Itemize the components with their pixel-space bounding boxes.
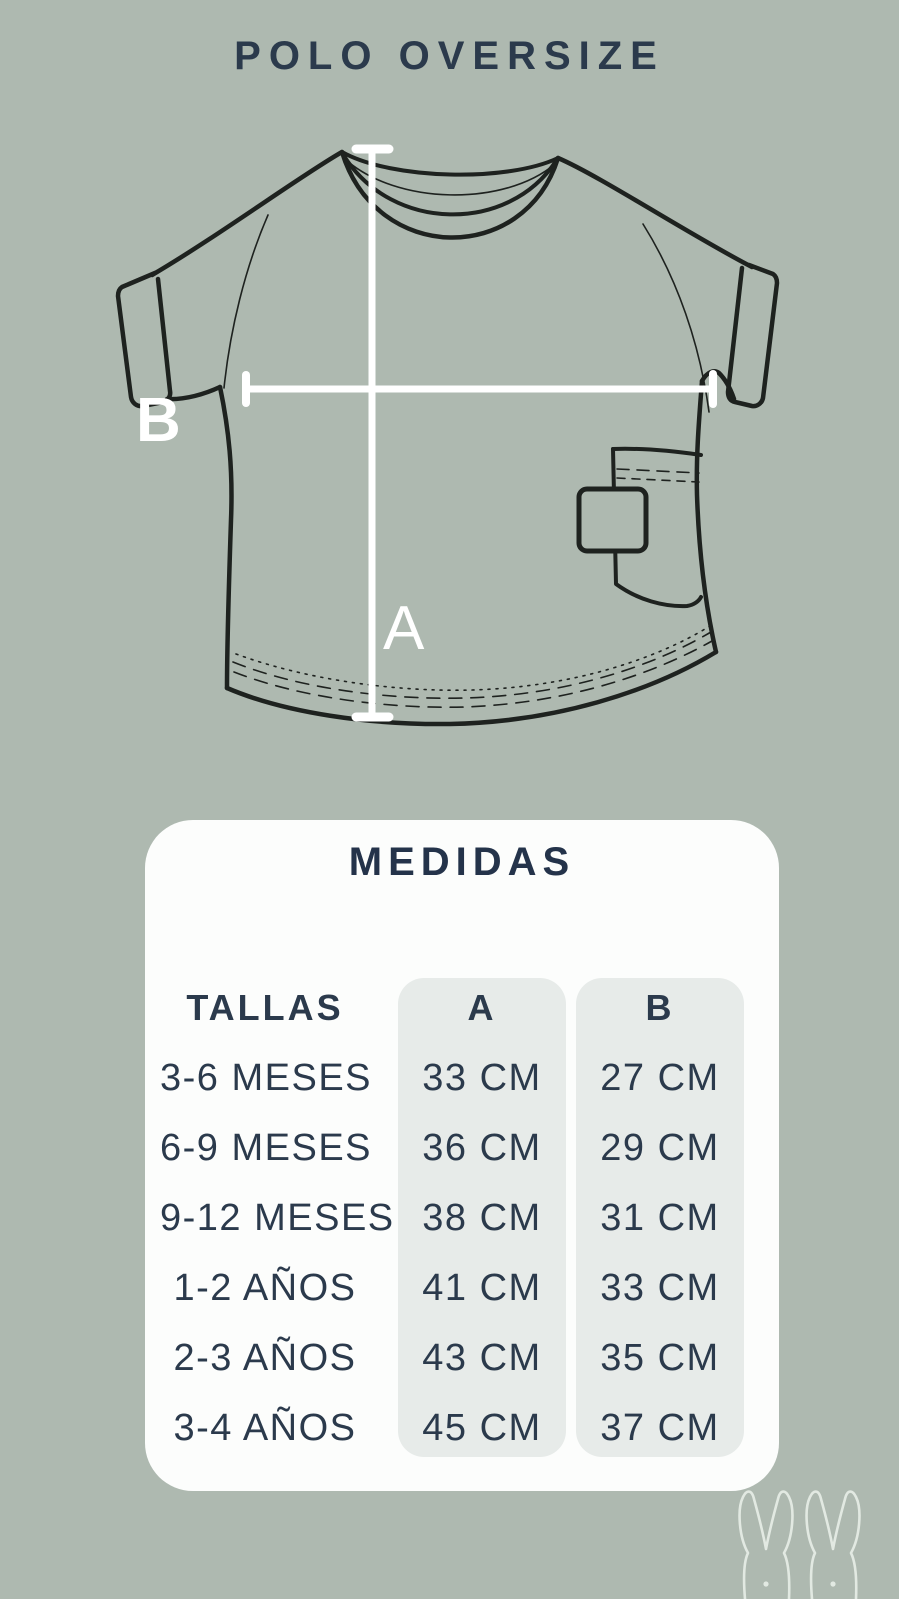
- shirt-left-armhole: [224, 215, 268, 388]
- card-title: MEDIDAS: [145, 840, 779, 885]
- shirt-label-patch: [579, 489, 646, 551]
- shirt-right-shoulder: [558, 158, 752, 267]
- header-col-a: A: [398, 987, 566, 1029]
- measure-a-value: 43 CM: [398, 1337, 566, 1380]
- bunny-nose: [763, 1581, 768, 1586]
- tshirt-diagram: [0, 0, 899, 780]
- measure-a-value: 38 CM: [398, 1197, 566, 1240]
- bunny-nose: [830, 1581, 835, 1586]
- shirt-left-shoulder: [152, 152, 342, 275]
- medidas-card: MEDIDAS TALLAS A B 3-6 MESES 33 CM 27 CM…: [145, 820, 779, 1491]
- size-row: 9-12 MESES 38 CM 31 CM: [145, 1183, 779, 1253]
- size-label: 3-6 MESES: [160, 1057, 370, 1100]
- header-tallas: TALLAS: [160, 987, 370, 1029]
- size-row: 6-9 MESES 36 CM 29 CM: [145, 1113, 779, 1183]
- shirt-pocket-stitch: [617, 469, 699, 473]
- shirt-hem-stitch: [236, 626, 710, 690]
- shirt-pocket-top: [613, 449, 701, 455]
- size-label: 1-2 AÑOS: [160, 1267, 370, 1310]
- size-row: 2-3 AÑOS 43 CM 35 CM: [145, 1323, 779, 1393]
- measure-a-value: 33 CM: [398, 1057, 566, 1100]
- measure-b-value: 37 CM: [576, 1407, 744, 1450]
- shirt-left-seam: [220, 387, 232, 688]
- size-label: 9-12 MESES: [160, 1197, 370, 1240]
- measure-b-value: 29 CM: [576, 1127, 744, 1170]
- size-label: 2-3 AÑOS: [160, 1337, 370, 1380]
- bunny-logo: [715, 1475, 899, 1599]
- shirt-right-seam: [697, 381, 716, 652]
- size-label: 6-9 MESES: [160, 1127, 370, 1170]
- measure-b-value: 27 CM: [576, 1057, 744, 1100]
- size-row: 3-6 MESES 33 CM 27 CM: [145, 1043, 779, 1113]
- table-header-row: TALLAS A B: [145, 973, 779, 1043]
- measure-b-value: 35 CM: [576, 1337, 744, 1380]
- measure-a-value: 41 CM: [398, 1267, 566, 1310]
- size-row: 1-2 AÑOS 41 CM 33 CM: [145, 1253, 779, 1323]
- measure-a-value: 45 CM: [398, 1407, 566, 1450]
- measure-label-b: B: [136, 390, 181, 452]
- measure-b-value: 31 CM: [576, 1197, 744, 1240]
- measure-a-value: 36 CM: [398, 1127, 566, 1170]
- measure-b-value: 33 CM: [576, 1267, 744, 1310]
- measure-label-a: A: [383, 598, 424, 660]
- shirt-pocket-stitch: [617, 478, 699, 482]
- shirt-right-armhole: [643, 224, 709, 412]
- size-label: 3-4 AÑOS: [160, 1407, 370, 1450]
- size-row: 3-4 AÑOS 45 CM 37 CM: [145, 1393, 779, 1463]
- shirt-hem: [227, 652, 716, 724]
- header-col-b: B: [576, 987, 744, 1029]
- shirt-right-cuff: [728, 265, 777, 406]
- size-guide-page: POLO OVERSIZE: [0, 0, 899, 1599]
